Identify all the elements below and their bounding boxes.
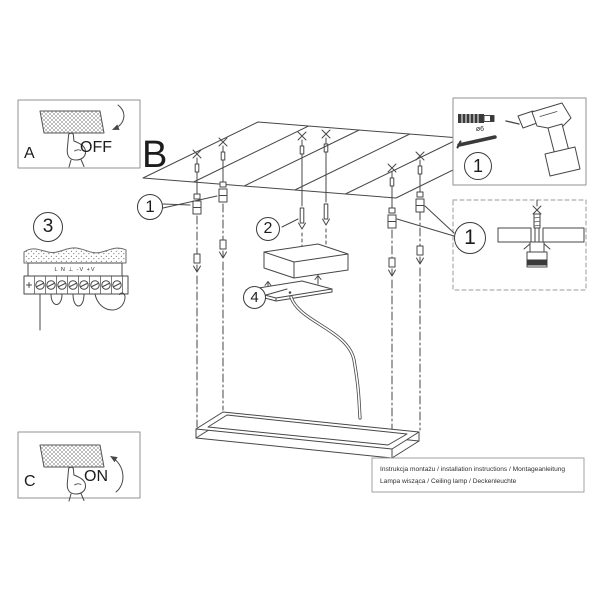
panel-c-letter: C <box>24 474 36 490</box>
callout-wiring: 3 <box>33 212 63 242</box>
leader-screws <box>282 219 298 227</box>
callout-parts-kit: 1 <box>464 152 492 180</box>
line-art <box>0 0 600 600</box>
panel-c <box>18 432 140 501</box>
leader-hangers <box>163 196 217 208</box>
on-label: ON <box>84 469 108 485</box>
callout-canopy-cover: 4 <box>243 286 266 309</box>
wiring-diagram <box>24 248 128 330</box>
off-label: OFF <box>80 140 112 156</box>
callout-mounting-screws: 2 <box>256 217 280 241</box>
suspension-wire-back-left <box>219 162 227 410</box>
canopy-box <box>264 244 348 278</box>
suspension-wire-back-right <box>416 176 424 430</box>
leader-anchor-detail <box>397 206 454 236</box>
suspension-wire-front-right <box>388 188 396 447</box>
callout-anchor-detail: 1 <box>454 222 486 254</box>
suspension-wire-front-left <box>193 174 201 427</box>
wires <box>40 293 125 330</box>
panel-a-letter: A <box>24 146 35 162</box>
step-b-letter: B <box>142 136 167 174</box>
anchor-size-label: ø6 <box>470 124 490 136</box>
terminal-labels: L N ⊥ -V +V <box>29 266 121 275</box>
footer-line-1: Instrukcja montażu / installation instru… <box>380 464 565 475</box>
footer-line-2: Lampa wisząca / Ceiling lamp / Deckenleu… <box>380 476 516 487</box>
power-cable <box>291 297 360 418</box>
ceiling-section <box>24 248 126 263</box>
anchor-detail-box <box>397 200 586 290</box>
callout-hangers: 1 <box>137 194 163 220</box>
instruction-sheet: A OFF C ON B 1 2 4 3 1 1 ø6 L N ⊥ -V +V … <box>0 0 600 600</box>
panel-a <box>18 100 140 168</box>
wall-anchor-icon <box>458 114 494 123</box>
lamp-frame <box>196 412 419 458</box>
